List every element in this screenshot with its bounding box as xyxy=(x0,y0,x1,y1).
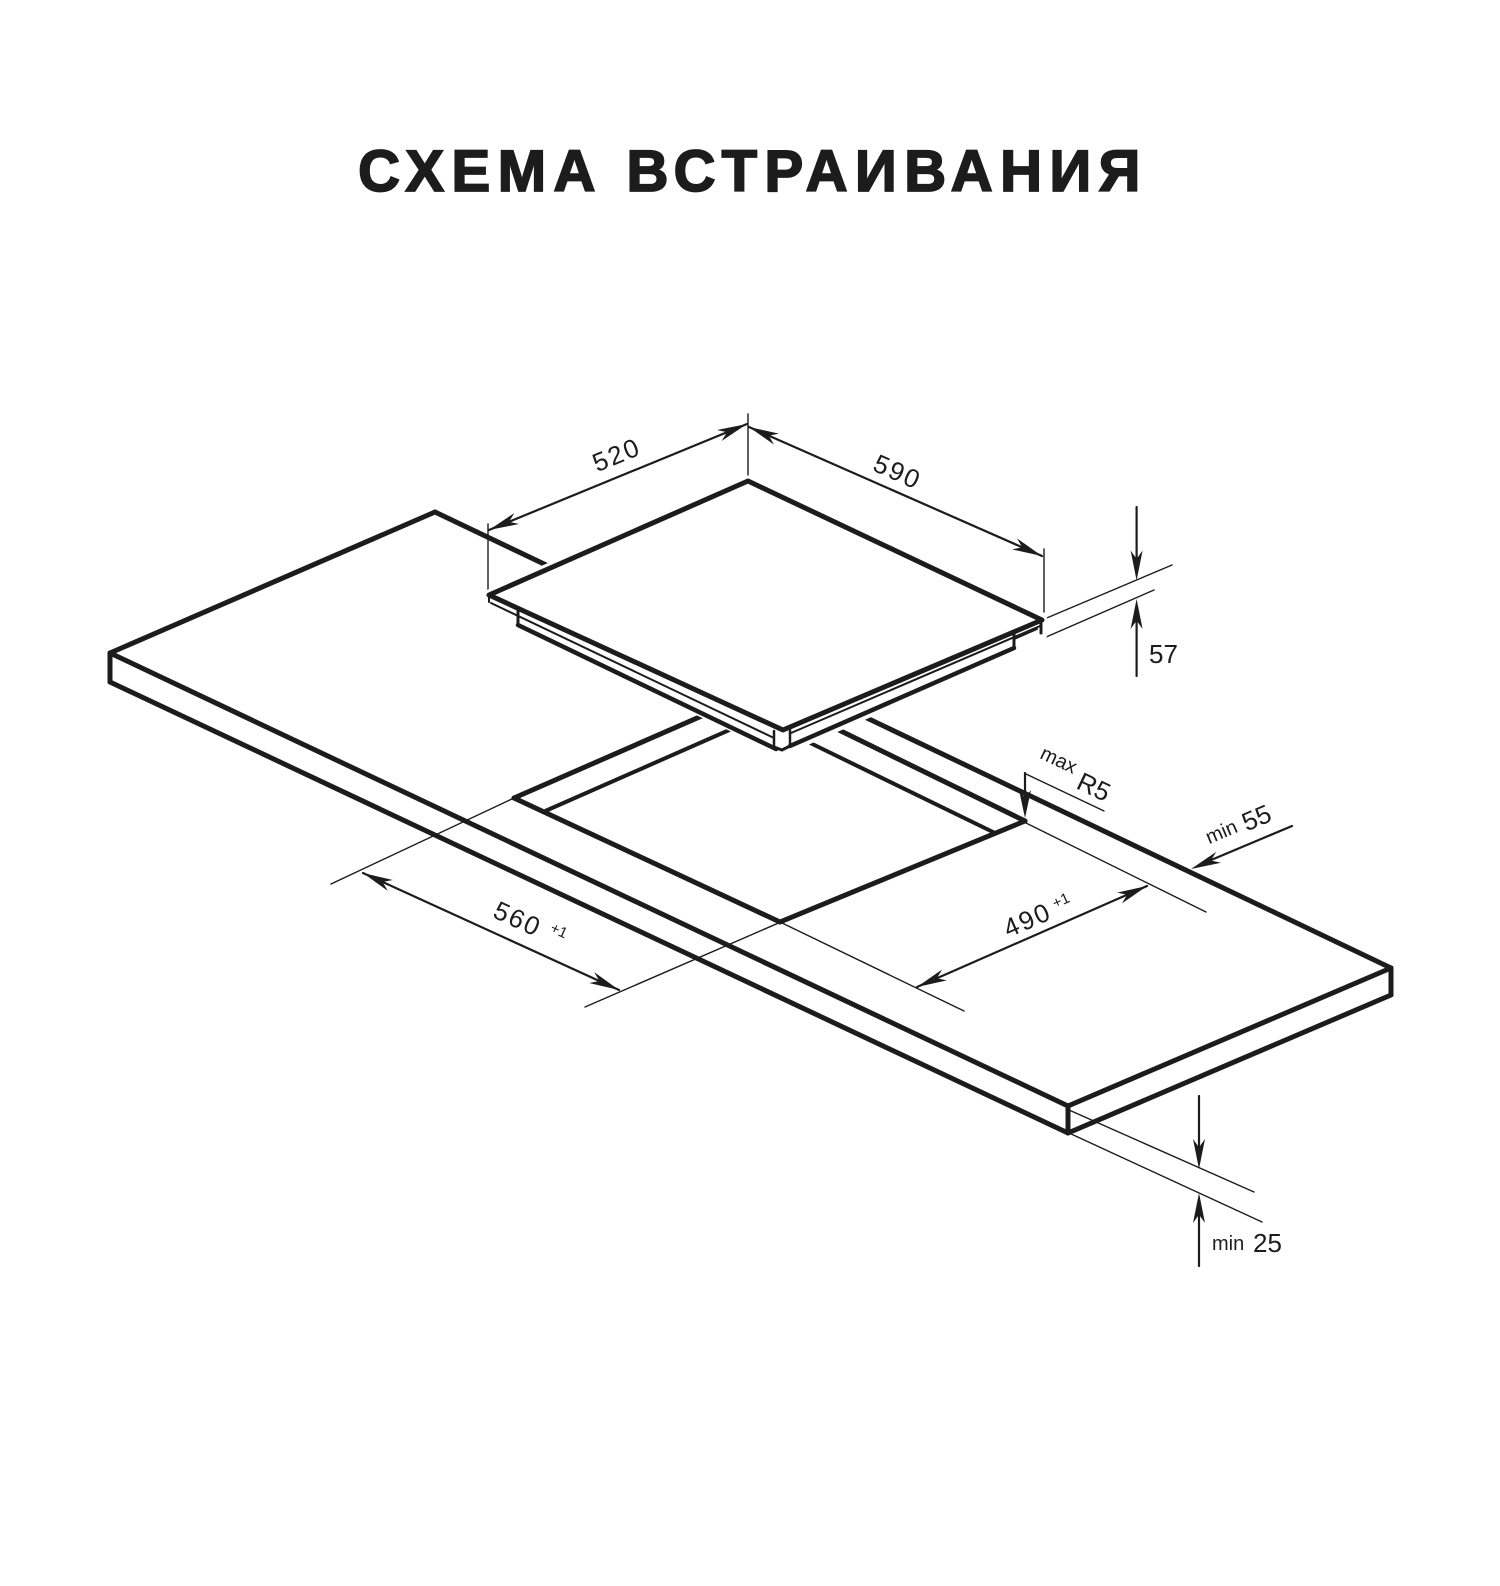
svg-text:СХЕМА ВСТРАИВАНИЯ: СХЕМА ВСТРАИВАНИЯ xyxy=(358,139,1148,204)
svg-text:25: 25 xyxy=(1253,1228,1282,1258)
svg-text:57: 57 xyxy=(1149,639,1178,669)
svg-text:min: min xyxy=(1212,1233,1244,1255)
